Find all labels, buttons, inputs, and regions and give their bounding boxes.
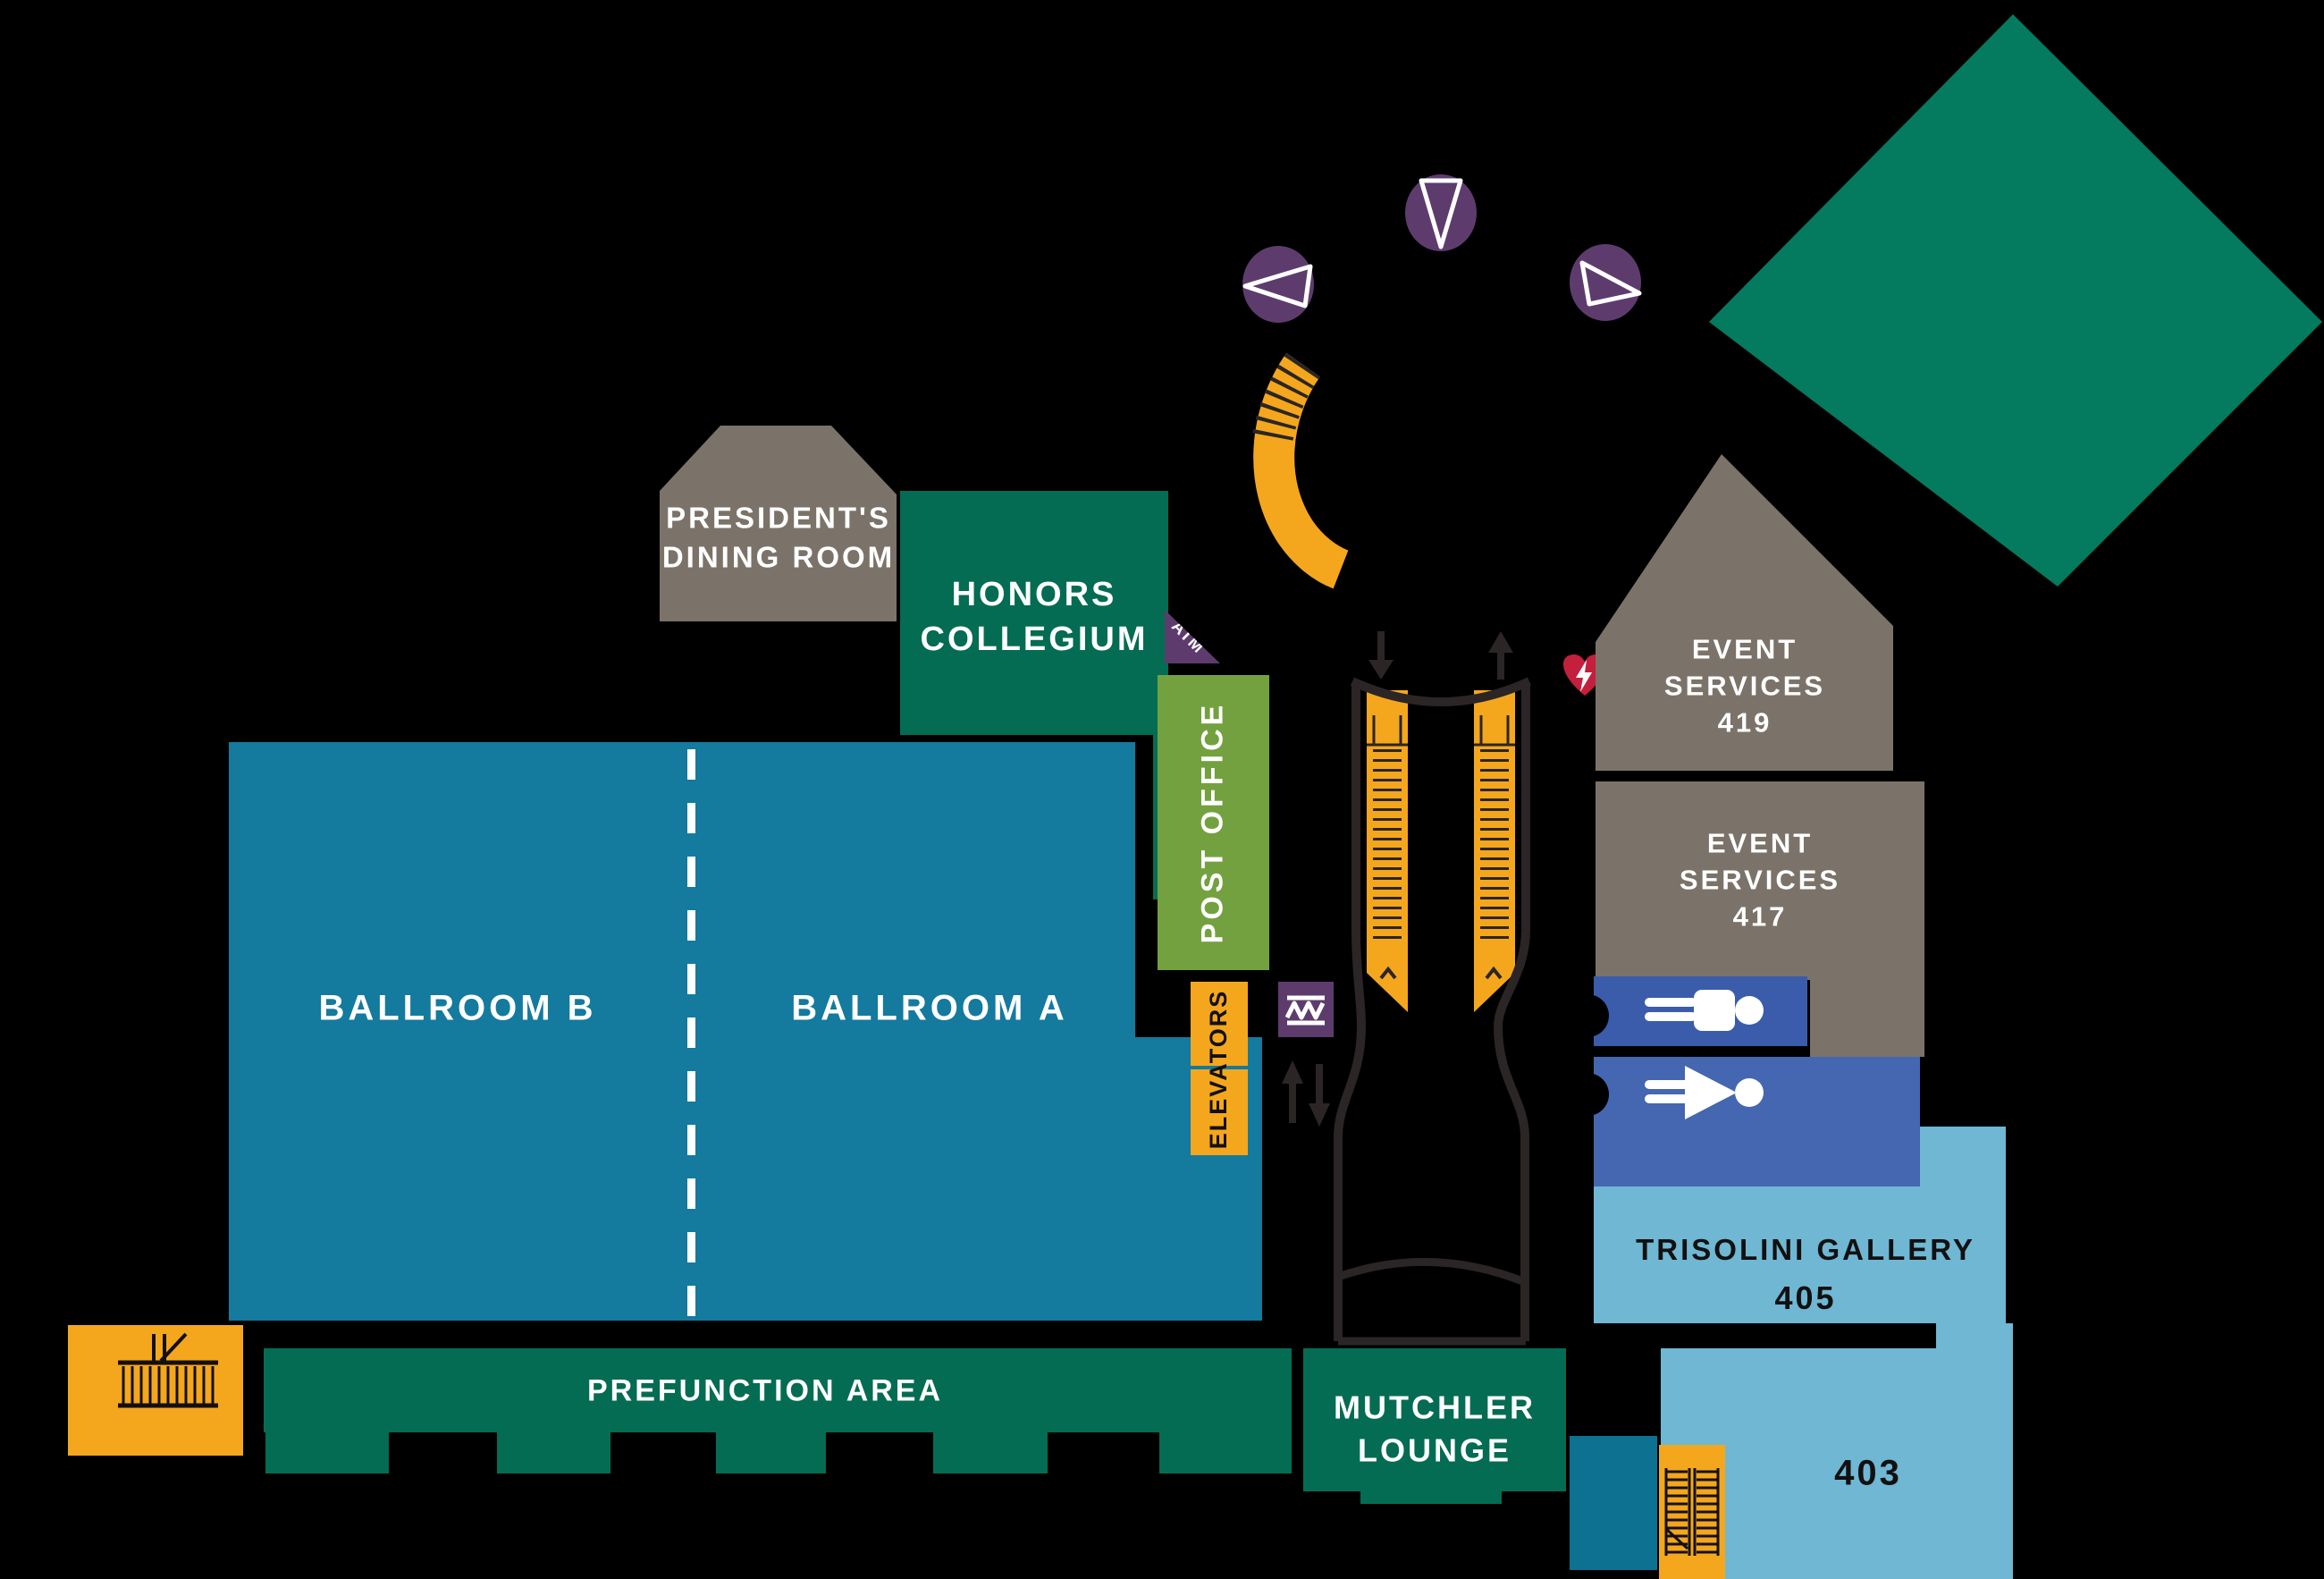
prefunction-tab [933, 1432, 1048, 1473]
prefunction-label: PREFUNCTION AREA [587, 1372, 943, 1412]
presidents-dining-line1: PRESIDENT'S [662, 498, 895, 537]
prefunction-tab [497, 1432, 610, 1473]
elevators-label: ELEVATORS [1203, 990, 1235, 1150]
prefunction-tab [1159, 1432, 1292, 1473]
dark-teal-block [1570, 1436, 1657, 1570]
event-419-line1: EVENT [1664, 632, 1825, 669]
room-event-services-417-extension [1810, 980, 1924, 1057]
escalator-right [1474, 690, 1515, 1012]
honors-line2: COLLEGIUM [921, 617, 1149, 662]
room-403-label: 403 [1834, 1450, 1902, 1498]
stairs-403 [1659, 1445, 1725, 1579]
stairs-west-icon [68, 1325, 243, 1456]
escalator-down-arrow-icon [1368, 631, 1394, 680]
mutchler-line2: LOUNGE [1334, 1429, 1536, 1472]
room-403-connector [1936, 1323, 2013, 1350]
mutchler-tab [1360, 1491, 1502, 1504]
post-office-label: POST OFFICE [1193, 702, 1234, 944]
trisolini-label: TRISOLINI GALLERY [1636, 1230, 1975, 1270]
mutchler-label: MUTCHLER LOUNGE [1334, 1386, 1536, 1471]
event-417-line2: SERVICES [1680, 863, 1840, 899]
atm-marker: ATM [1165, 610, 1220, 663]
restroom-men [1594, 976, 1807, 1046]
presidents-dining-label: PRESIDENT'S DINING ROOM [662, 498, 895, 576]
prefunction-tab [265, 1432, 389, 1473]
event-417-label: EVENT SERVICES 417 [1680, 826, 1840, 936]
escalator-up-arrow-icon [1488, 631, 1513, 680]
mutchler-line1: MUTCHLER [1334, 1386, 1536, 1429]
escalator-group [1305, 604, 1591, 1391]
restroom-men-icon [1594, 976, 1807, 1046]
restroom-women [1594, 1057, 1920, 1186]
event-417-line3: 417 [1680, 899, 1840, 935]
trisolini-number: 405 [1774, 1277, 1836, 1320]
restroom-women-door-arc [1566, 1073, 1609, 1116]
presidents-dining-line2: DINING ROOM [662, 537, 895, 577]
prefunction-tab [716, 1432, 826, 1473]
event-419-line2: SERVICES [1664, 669, 1825, 705]
atm-label: ATM [1166, 617, 1208, 658]
rotunda-diamond [1698, 5, 2324, 595]
direction-marker-left [1234, 240, 1323, 329]
stairs-403-icon [1659, 1445, 1725, 1579]
restroom-men-door-arc [1566, 994, 1609, 1037]
honors-line1: HONORS [921, 572, 1149, 617]
ballroom-a-label: BALLROOM A [791, 985, 1068, 1033]
curved-stairs-icon [1247, 344, 1372, 595]
direction-marker-right [1561, 238, 1650, 327]
event-419-line3: 419 [1664, 705, 1825, 741]
event-417-line1: EVENT [1680, 826, 1840, 863]
escalator-left [1367, 690, 1408, 1012]
ballroom-divider-dashed [687, 749, 695, 1321]
floor-map: BALLROOM B BALLROOM A PRESIDENT'S DINING… [0, 0, 2324, 1579]
event-419-label: EVENT SERVICES 419 [1664, 632, 1825, 742]
direction-marker-down [1396, 168, 1486, 258]
ballroom-b-label: BALLROOM B [318, 985, 596, 1033]
honors-collegium-label: HONORS COLLEGIUM [921, 572, 1149, 662]
stairs-west [68, 1325, 243, 1456]
restroom-women-icon [1594, 1057, 1920, 1186]
